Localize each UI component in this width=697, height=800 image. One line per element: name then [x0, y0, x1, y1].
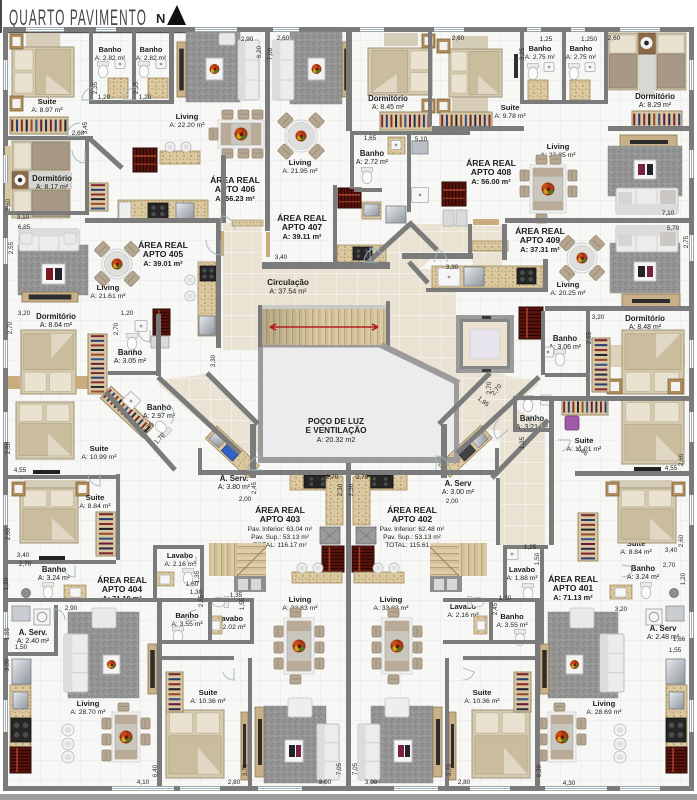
svg-text:A: 3.05 m²: A: 3.05 m²	[114, 358, 147, 365]
svg-text:2,80: 2,80	[228, 779, 241, 786]
svg-text:Pav. Inferior: 62.48 m²: Pav. Inferior: 62.48 m²	[380, 526, 446, 533]
svg-text:POÇO DE LUZ: POÇO DE LUZ	[308, 417, 364, 426]
svg-text:A: 8.29 m²: A: 8.29 m²	[639, 102, 672, 109]
svg-text:A: 37.54 m²: A: 37.54 m²	[269, 286, 307, 295]
svg-text:Pav. Sup.: 53.13 m²: Pav. Sup.: 53.13 m²	[251, 534, 310, 541]
svg-text:Pav. Sup.: 53.13 m²: Pav. Sup.: 53.13 m²	[383, 534, 442, 541]
svg-text:Living: Living	[380, 595, 403, 604]
svg-text:3,70: 3,70	[446, 763, 453, 776]
svg-text:Dormitório: Dormitório	[368, 94, 408, 103]
svg-text:A: 71.13 m²: A: 71.13 m²	[553, 593, 593, 602]
svg-text:Banho: Banho	[360, 149, 384, 158]
svg-text:7,05: 7,05	[336, 762, 343, 775]
svg-text:Banho: Banho	[140, 45, 163, 54]
svg-text:Suite: Suite	[90, 444, 110, 453]
svg-text:Suite: Suite	[501, 103, 521, 112]
svg-text:Suite: Suite	[86, 493, 106, 502]
svg-text:A: 3.24 m²: A: 3.24 m²	[627, 574, 660, 581]
svg-text:A: 28.70 m²: A: 28.70 m²	[70, 709, 106, 716]
svg-text:A: 2.72 m²: A: 2.72 m²	[356, 159, 389, 166]
svg-text:A: 10.36 m²: A: 10.36 m²	[190, 698, 226, 705]
svg-text:6,40: 6,40	[152, 764, 159, 777]
svg-text:A: 8.97 m²: A: 8.97 m²	[31, 107, 63, 114]
svg-text:3,30: 3,30	[210, 354, 217, 367]
svg-text:3,00: 3,00	[4, 658, 11, 671]
svg-text:A: 20.25 m²: A: 20.25 m²	[550, 290, 586, 297]
svg-text:2,70: 2,70	[7, 321, 14, 334]
svg-text:1,55: 1,55	[239, 597, 246, 610]
svg-text:2,70: 2,70	[663, 562, 676, 569]
svg-text:2,55: 2,55	[198, 594, 205, 607]
svg-text:Banho: Banho	[631, 564, 655, 573]
svg-text:6,85: 6,85	[18, 224, 31, 231]
svg-text:1,35: 1,35	[519, 436, 526, 449]
svg-text:5,10: 5,10	[415, 136, 428, 143]
svg-text:Banho: Banho	[42, 565, 66, 574]
svg-text:3,40: 3,40	[17, 552, 30, 559]
svg-text:Living: Living	[176, 112, 199, 121]
svg-text:2,35: 2,35	[133, 81, 140, 94]
svg-text:2,60: 2,60	[608, 35, 621, 42]
svg-text:2,60: 2,60	[5, 527, 12, 540]
svg-text:A: 3.00 m²: A: 3.00 m²	[442, 489, 475, 496]
svg-text:Lavabo: Lavabo	[167, 551, 194, 560]
svg-text:APTO 405: APTO 405	[143, 249, 184, 259]
svg-text:A. Serv.: A. Serv.	[220, 474, 248, 483]
svg-text:Banho: Banho	[147, 403, 171, 412]
svg-text:Suite: Suite	[575, 436, 595, 445]
svg-text:A: 8.45 m²: A: 8.45 m²	[372, 104, 405, 111]
svg-text:Living: Living	[289, 158, 312, 167]
svg-text:Living: Living	[77, 699, 100, 708]
svg-text:A: 56.00 m²: A: 56.00 m²	[471, 177, 511, 186]
svg-text:1,250: 1,250	[581, 36, 597, 43]
svg-text:APTO 409: APTO 409	[520, 235, 561, 245]
svg-text:Living: Living	[557, 280, 580, 289]
svg-text:Dormitório: Dormitório	[625, 314, 665, 323]
svg-text:1,55: 1,55	[4, 627, 11, 640]
svg-text:2,60: 2,60	[277, 35, 290, 42]
svg-text:2,30: 2,30	[337, 483, 344, 496]
svg-text:N: N	[156, 11, 165, 26]
svg-text:2,65: 2,65	[586, 331, 593, 344]
svg-text:Living: Living	[289, 595, 312, 604]
svg-text:2,45: 2,45	[251, 481, 258, 494]
svg-text:2,90: 2,90	[241, 36, 254, 43]
svg-text:A: 28.69 m²: A: 28.69 m²	[586, 709, 622, 716]
svg-text:Banho: Banho	[99, 45, 122, 54]
svg-text:A: 3.24 m²: A: 3.24 m²	[38, 575, 71, 582]
svg-text:1,60: 1,60	[186, 581, 199, 588]
svg-text:A: 20.32 m2: A: 20.32 m2	[317, 435, 356, 444]
svg-text:1,25: 1,25	[540, 36, 553, 43]
svg-text:Suite: Suite	[199, 688, 219, 697]
svg-text:Suite: Suite	[38, 97, 58, 106]
svg-text:3,00: 3,00	[365, 779, 378, 786]
svg-text:3,10: 3,10	[17, 214, 30, 221]
svg-text:APTO 403: APTO 403	[260, 514, 301, 524]
svg-text:2,70: 2,70	[326, 474, 339, 481]
svg-text:4,10: 4,10	[137, 779, 150, 786]
svg-text:Living: Living	[593, 699, 616, 708]
svg-text:1,20: 1,20	[121, 310, 134, 317]
svg-text:1,20: 1,20	[680, 572, 687, 585]
svg-text:7,10: 7,10	[662, 210, 675, 217]
svg-text:3,40: 3,40	[665, 547, 678, 554]
svg-text:1,20: 1,20	[139, 94, 152, 101]
svg-text:A: 39.01 m²: A: 39.01 m²	[143, 259, 183, 268]
svg-text:2,70: 2,70	[19, 561, 32, 568]
svg-text:A: 8.17 m²: A: 8.17 m²	[36, 184, 69, 191]
svg-text:3,40: 3,40	[275, 254, 288, 261]
svg-text:A: 9.78 m²: A: 9.78 m²	[494, 113, 526, 120]
svg-text:Dormitório: Dormitório	[36, 312, 76, 321]
svg-text:A: 2.97 m²: A: 2.97 m²	[143, 413, 176, 420]
svg-text:1,65: 1,65	[364, 135, 377, 142]
svg-text:APTO 402: APTO 402	[392, 514, 433, 524]
svg-text:1,55: 1,55	[669, 647, 682, 654]
svg-text:QUARTO PAVIMENTO: QUARTO PAVIMENTO	[9, 5, 147, 30]
svg-text:2,00: 2,00	[239, 496, 252, 503]
svg-text:2,60: 2,60	[452, 35, 465, 42]
svg-text:6,30: 6,30	[536, 764, 543, 777]
svg-text:Banho: Banho	[570, 44, 593, 53]
svg-text:Pav. Inferior: 63.04 m²: Pav. Inferior: 63.04 m²	[248, 526, 314, 533]
svg-text:A. Serv: A. Serv	[445, 479, 473, 488]
svg-text:2,00: 2,00	[446, 498, 459, 505]
svg-text:Living: Living	[97, 283, 120, 292]
svg-text:4,55: 4,55	[665, 465, 678, 472]
svg-text:3,25: 3,25	[519, 47, 526, 60]
svg-text:APTO 401: APTO 401	[553, 583, 594, 593]
svg-text:1,20: 1,20	[98, 94, 111, 101]
svg-text:7,00: 7,00	[267, 47, 274, 60]
svg-text:7,05: 7,05	[352, 762, 359, 775]
svg-text:2,60: 2,60	[678, 453, 685, 466]
svg-text:A: 39.11 m²: A: 39.11 m²	[282, 232, 322, 241]
svg-text:A: 2.75 m²: A: 2.75 m²	[525, 54, 556, 61]
svg-text:A: 8.84 m²: A: 8.84 m²	[620, 549, 652, 556]
svg-text:2,75: 2,75	[683, 235, 690, 248]
svg-text:A: 2.75 m²: A: 2.75 m²	[566, 54, 597, 61]
svg-text:Dormitório: Dormitório	[32, 174, 72, 183]
svg-text:2,30: 2,30	[348, 483, 355, 496]
svg-text:1,30: 1,30	[499, 595, 512, 602]
svg-text:Suite: Suite	[473, 688, 493, 697]
svg-text:APTO 407: APTO 407	[282, 222, 323, 232]
svg-text:Dormitório: Dormitório	[635, 92, 675, 101]
svg-text:2,60: 2,60	[678, 534, 685, 547]
svg-text:A: 37.31 m²: A: 37.31 m²	[520, 245, 560, 254]
svg-text:1,66: 1,66	[673, 636, 686, 643]
svg-text:APTO 406: APTO 406	[215, 184, 256, 194]
svg-text:1,20: 1,20	[3, 577, 10, 590]
svg-text:3,30: 3,30	[446, 264, 459, 271]
svg-text:A: 22.20 m²: A: 22.20 m²	[169, 122, 205, 129]
svg-text:A: 2.16 m²: A: 2.16 m²	[164, 561, 196, 568]
svg-text:3,70: 3,70	[242, 763, 249, 776]
svg-text:3,20: 3,20	[592, 314, 605, 321]
svg-text:3,20: 3,20	[615, 606, 628, 613]
svg-text:Banho: Banho	[553, 334, 577, 343]
svg-text:4,55: 4,55	[14, 467, 27, 474]
svg-text:A: 1.88 m²: A: 1.88 m²	[506, 575, 538, 582]
svg-text:A: 8.64 m²: A: 8.64 m²	[40, 322, 73, 329]
svg-text:1,50: 1,50	[15, 644, 28, 651]
svg-text:A: 3.55 m²: A: 3.55 m²	[496, 622, 528, 629]
svg-text:A: 10.36 m²: A: 10.36 m²	[464, 698, 500, 705]
svg-text:A: 8.84 m²: A: 8.84 m²	[79, 503, 111, 510]
svg-text:A. Serv.: A. Serv.	[19, 628, 47, 637]
svg-text:APTO 404: APTO 404	[102, 584, 143, 594]
svg-text:5,70: 5,70	[667, 225, 680, 232]
svg-text:2,60: 2,60	[5, 441, 12, 454]
svg-text:Banho: Banho	[529, 44, 552, 53]
svg-text:2,55: 2,55	[8, 241, 15, 254]
svg-text:6,20: 6,20	[256, 45, 263, 58]
svg-text:2,35: 2,35	[92, 81, 99, 94]
svg-text:A: 3.80 m²: A: 3.80 m²	[218, 484, 251, 491]
svg-text:3,00: 3,00	[319, 779, 332, 786]
svg-text:E VENTILAÇÃO: E VENTILAÇÃO	[306, 425, 368, 435]
svg-text:A: 21.61 m²: A: 21.61 m²	[90, 293, 126, 300]
svg-text:2,60: 2,60	[5, 198, 12, 211]
svg-text:4,30: 4,30	[563, 780, 576, 787]
svg-text:3,20: 3,20	[18, 310, 31, 317]
svg-text:2,45: 2,45	[492, 602, 499, 615]
svg-text:1,50: 1,50	[534, 552, 541, 565]
svg-text:2,80: 2,80	[458, 779, 471, 786]
svg-text:2,70: 2,70	[356, 474, 369, 481]
svg-text:Banho: Banho	[500, 612, 524, 621]
svg-text:Lavabo: Lavabo	[509, 565, 536, 574]
svg-text:1,25: 1,25	[524, 544, 537, 551]
svg-text:2,70: 2,70	[113, 322, 120, 335]
svg-text:2,90: 2,90	[65, 605, 78, 612]
svg-text:A: 21.95 m²: A: 21.95 m²	[282, 168, 318, 175]
svg-text:APTO 408: APTO 408	[471, 167, 512, 177]
svg-text:2,70: 2,70	[486, 381, 493, 394]
svg-text:A: 10.99 m²: A: 10.99 m²	[81, 454, 117, 461]
svg-text:Living: Living	[547, 142, 570, 151]
